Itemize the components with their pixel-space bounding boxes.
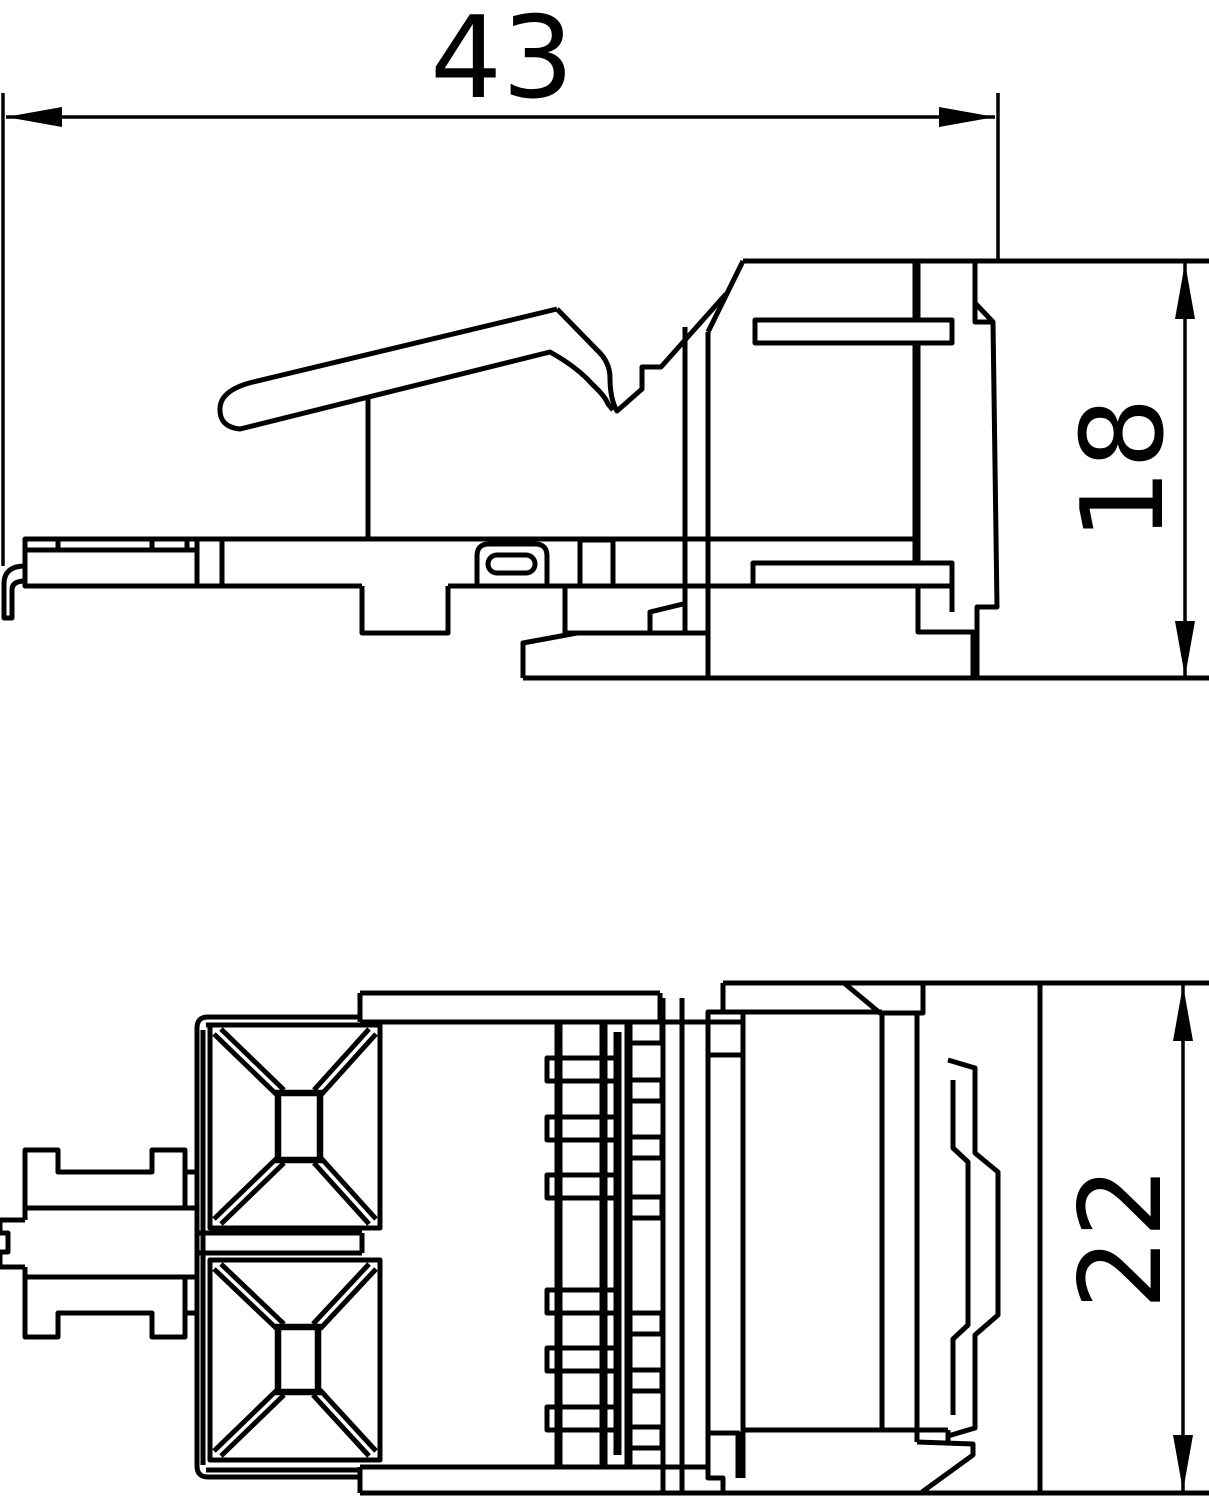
- latch-lever: [220, 309, 613, 429]
- bracket-bottom-block: [25, 1277, 185, 1337]
- latch-cutout-top: [844, 983, 923, 1013]
- dimension-side-height-18: 18: [1057, 263, 1195, 677]
- latch-wedge-bottom: [917, 1442, 973, 1492]
- plate-connector: [197, 539, 222, 586]
- oval-slot: [488, 555, 535, 573]
- dimension-value-front-height: 22: [1055, 1166, 1187, 1310]
- lower-groove: [753, 563, 952, 586]
- jack-left-step-bottom: [708, 1433, 738, 1478]
- arrowhead-bottom: [1173, 1435, 1193, 1491]
- upper-funnel-inner: [278, 1093, 320, 1160]
- bottom-foot: [523, 633, 708, 678]
- right-edge-chamfer: [975, 303, 993, 322]
- upper-funnel-diagonals: [214, 1029, 376, 1224]
- dimension-value-side-height: 18: [1057, 397, 1189, 541]
- upper-groove: [755, 320, 952, 343]
- arrowhead-bottom: [1175, 621, 1195, 677]
- arrowhead-left: [6, 107, 62, 127]
- lower-funnel-inner: [278, 1327, 318, 1392]
- left-hook: [4, 566, 25, 618]
- jack-left-edge: [708, 983, 723, 1493]
- pedestal-tower: [580, 540, 613, 586]
- dimension-value-width: 43: [430, 0, 574, 124]
- jack-block-right-edge: [975, 261, 997, 678]
- pedestal-base: [565, 586, 683, 633]
- below-groove-step: [918, 586, 973, 678]
- side-view: [4, 261, 1209, 678]
- technical-drawing: 43: [0, 0, 1209, 1500]
- jack-block-chamfer: [708, 261, 743, 332]
- arrowhead-top: [1175, 263, 1195, 319]
- keystone-nose-inner: [953, 1080, 968, 1415]
- dimension-front-height-22: 22: [1055, 985, 1193, 1491]
- latch-nose-v-notch: [557, 294, 726, 411]
- plan-view: [0, 983, 1209, 1493]
- bracket-top-block: [25, 1150, 185, 1208]
- bracket-left-tab: [0, 1220, 25, 1267]
- foot-step: [362, 586, 448, 633]
- arrowhead-top: [1173, 985, 1193, 1041]
- drawing-sheet: 43: [0, 0, 1209, 1500]
- dimension-width-43: 43: [3, 0, 998, 566]
- mounting-plate: [25, 539, 197, 586]
- arrowhead-right: [939, 107, 995, 127]
- lower-funnel-diagonals: [214, 1264, 376, 1456]
